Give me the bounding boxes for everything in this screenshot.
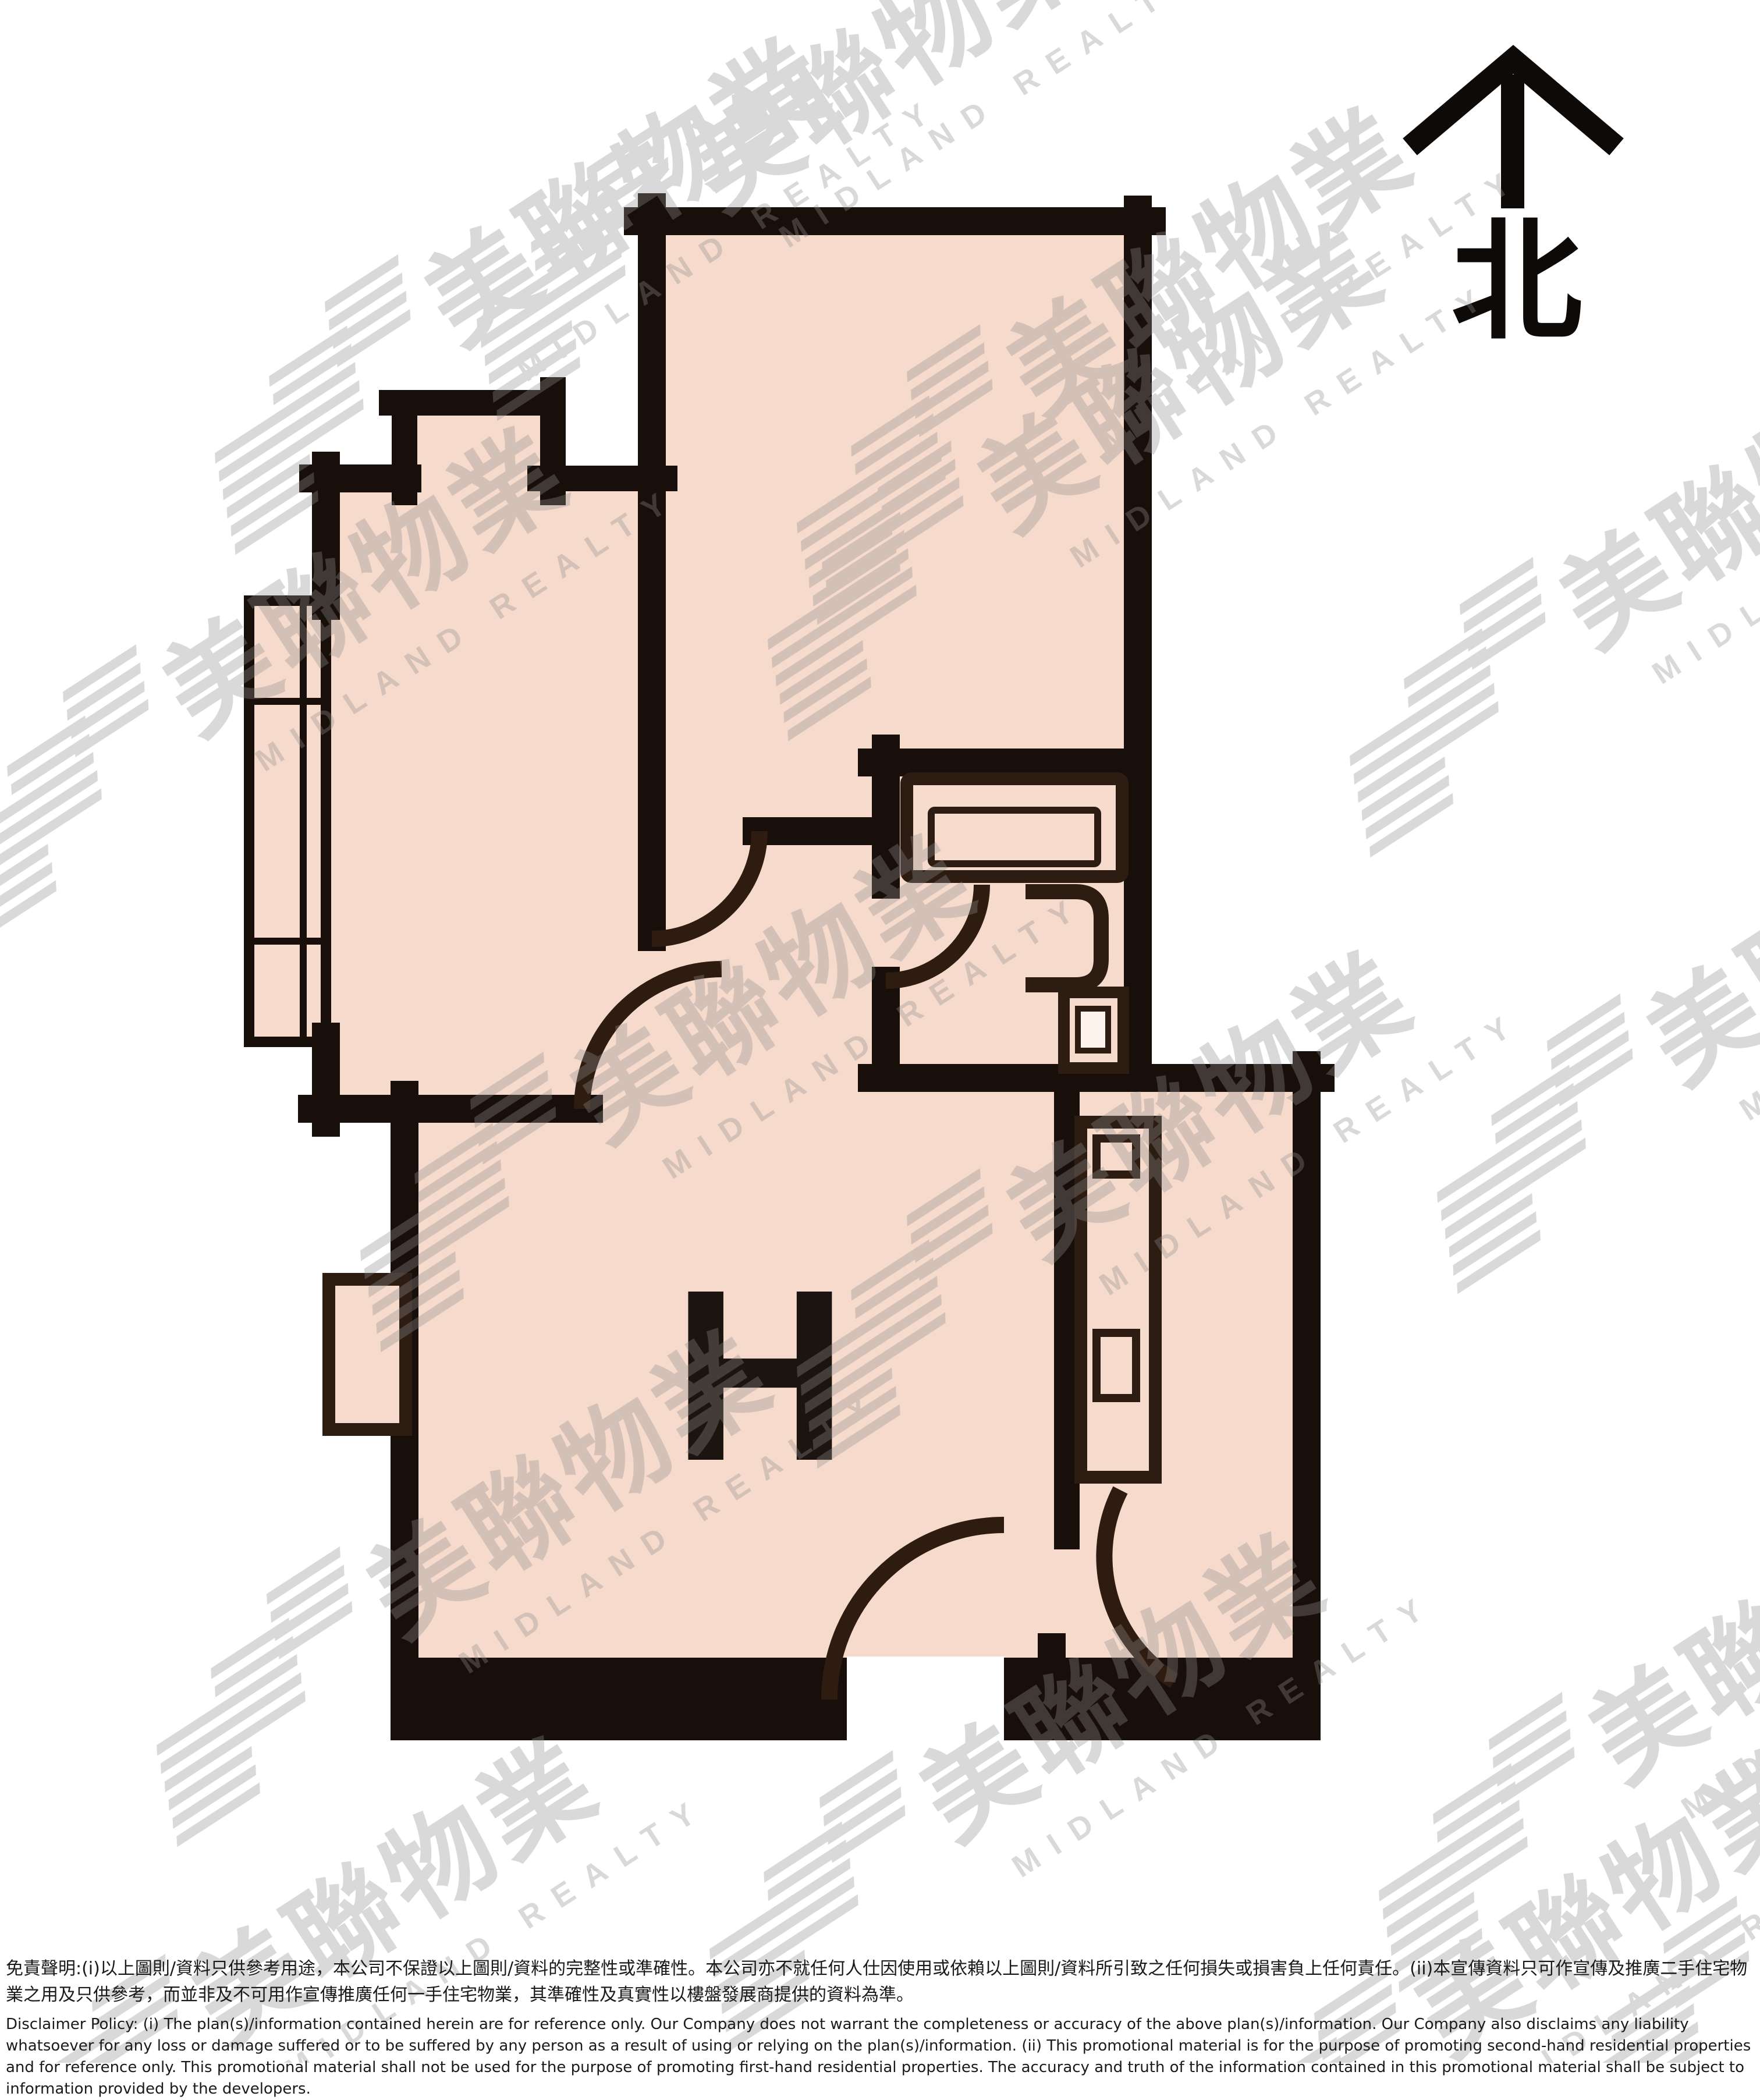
disclaimer-text-en: Disclaimer Policy: (i) The plan(s)/infor… <box>6 2014 1752 2100</box>
floor-plan-page: 美聯物業 MIDLAND REALTY <box>0 0 1760 2063</box>
disclaimer-block: 免責聲明:(i)以上圖則/資料只供參考用途，本公司不保證以上圖則/資料的完整性或… <box>6 1956 1752 2100</box>
toilet-cistern <box>1078 1009 1108 1051</box>
disclaimer-text-zh: 免責聲明:(i)以上圖則/資料只供參考用途，本公司不保證以上圖則/資料的完整性或… <box>6 1956 1752 2008</box>
floor-plan-canvas: 美聯物業 MIDLAND REALTY <box>0 0 1760 2063</box>
